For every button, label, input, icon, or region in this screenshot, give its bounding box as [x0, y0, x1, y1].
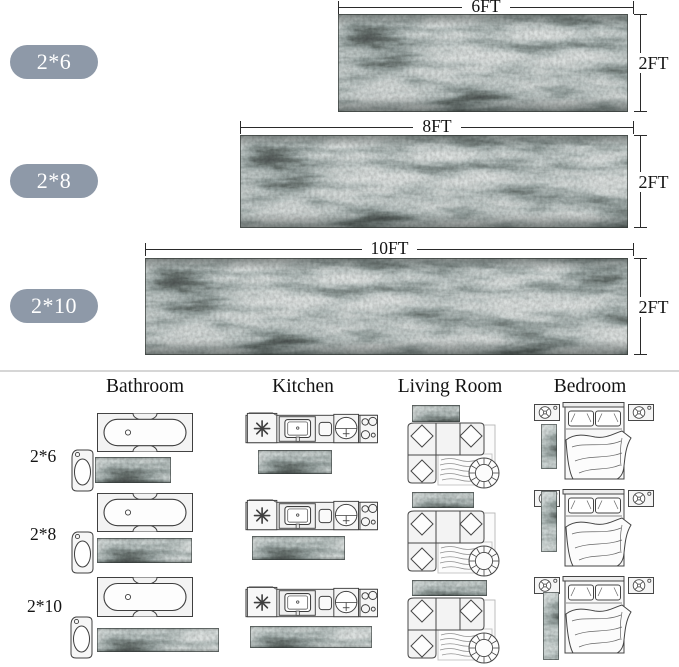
dimension-tick [634, 227, 647, 228]
row-label-2x6: 2*6 [30, 446, 56, 467]
kitchen-counter-drawing [245, 412, 378, 446]
bedroom-rug-2x6 [541, 424, 557, 469]
living-room-rug-2x6 [412, 405, 460, 422]
bathtub-drawing [97, 577, 193, 617]
kitchen-rug-2x8 [252, 536, 345, 560]
bathroom-rug-2x8 [97, 538, 192, 563]
length-dimension-8ft: 8FT [240, 120, 634, 134]
size-badge-label: 2*10 [31, 293, 77, 319]
sectional-sofa-drawing [406, 509, 502, 579]
size-badge-label: 2*8 [37, 168, 72, 194]
kitchen-counter-drawing [245, 499, 378, 533]
kitchen-rug-2x10 [250, 626, 372, 648]
bed-drawing [560, 576, 635, 654]
bathtub-drawing [97, 413, 193, 452]
dimension-line [640, 15, 641, 53]
length-dimension-6ft: 6FT [338, 0, 634, 14]
dimension-tick [634, 354, 647, 355]
length-dimension-label: 6FT [462, 0, 509, 13]
pedestal-sink-drawing [71, 531, 94, 574]
dimension-line [510, 7, 633, 8]
section-divider [0, 370, 679, 372]
column-header-bathroom: Bathroom [106, 376, 184, 398]
nightstand-drawing [534, 404, 560, 421]
width-dimension-label: 2FT [639, 297, 669, 317]
sectional-sofa-drawing [406, 421, 502, 491]
row-label-2x8: 2*8 [30, 524, 56, 545]
column-header-bedroom: Bedroom [554, 376, 627, 398]
size-badge-label: 2*6 [37, 49, 72, 75]
dimension-line [417, 249, 633, 250]
bedroom-rug-2x10 [543, 592, 559, 660]
bathroom-rug-2x6 [95, 457, 171, 483]
size-badge-2x10: 2*10 [10, 289, 98, 323]
length-dimension-label: 10FT [362, 241, 418, 255]
size-badge-2x6: 2*6 [10, 45, 98, 79]
width-dimension-2ft: 2FT [633, 14, 647, 112]
kitchen-counter-drawing [245, 586, 378, 620]
dimension-line [339, 7, 462, 8]
row-label-2x10: 2*10 [27, 596, 62, 617]
sectional-sofa-drawing [406, 596, 502, 666]
width-dimension-label: 2FT [639, 172, 669, 192]
dimension-tick [633, 243, 634, 256]
runner-rug-8ft-swatch [240, 135, 628, 228]
bed-drawing [560, 489, 635, 567]
pedestal-sink-drawing [70, 616, 93, 659]
dimension-line [640, 136, 641, 172]
dimension-line [640, 192, 641, 228]
width-dimension-2ft: 2FT [633, 258, 647, 355]
width-dimension-label: 2FT [639, 53, 669, 73]
runner-rug-6ft-swatch [338, 14, 628, 112]
living-room-rug-2x8 [412, 492, 474, 508]
dimension-line [640, 73, 641, 111]
size-badge-2x8: 2*8 [10, 164, 98, 198]
bedroom-rug-2x8 [541, 491, 557, 552]
column-header-kitchen: Kitchen [272, 376, 334, 398]
bed-drawing [560, 402, 635, 480]
length-dimension-label: 8FT [413, 119, 460, 133]
bathtub-drawing [97, 493, 193, 532]
width-dimension-2ft: 2FT [633, 135, 647, 228]
living-room-rug-2x10 [412, 580, 487, 596]
column-header-living-room: Living Room [398, 376, 503, 398]
dimension-line [146, 249, 362, 250]
dimension-tick [633, 121, 634, 134]
bathroom-rug-2x10 [97, 628, 219, 652]
dimension-line [461, 127, 633, 128]
length-dimension-10ft: 10FT [145, 242, 634, 256]
dimension-tick [634, 111, 647, 112]
dimension-line [640, 259, 641, 297]
dimension-line [640, 317, 641, 355]
kitchen-rug-2x6 [258, 450, 332, 474]
rug-size-guide-image: 2*6 6FT 2FT 2*8 8FT [0, 0, 679, 667]
runner-rug-10ft-swatch [145, 258, 628, 355]
dimension-tick [633, 1, 634, 14]
pedestal-sink-drawing [71, 449, 94, 492]
dimension-line [241, 127, 413, 128]
